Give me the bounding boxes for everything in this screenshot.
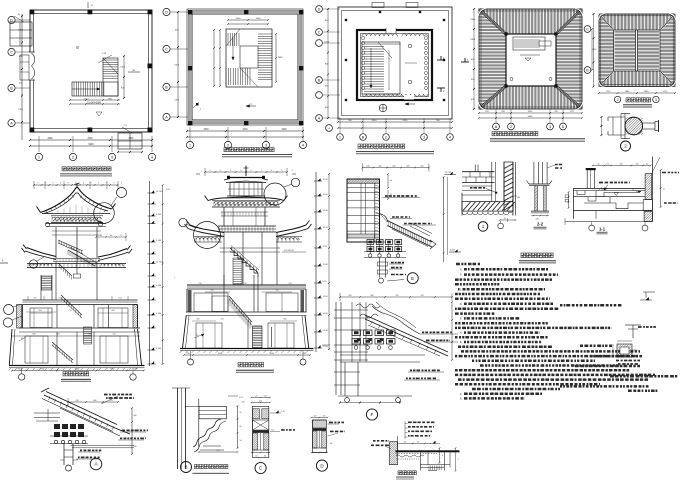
svg-text:3300: 3300 [242, 129, 248, 131]
svg-text:1500: 1500 [174, 65, 180, 67]
svg-text:360: 360 [378, 166, 381, 168]
svg-text:2: 2 [227, 143, 229, 147]
svg-text:1.2: 1.2 [120, 235, 123, 237]
svg-text:9: 9 [281, 170, 282, 172]
svg-text:4.: 4. [460, 331, 462, 335]
svg-text:420: 420 [620, 163, 623, 165]
svg-text:2: 2 [385, 135, 387, 139]
svg-text:3300: 3300 [128, 138, 134, 140]
svg-text:60: 60 [264, 456, 266, 458]
svg-text:750: 750 [220, 319, 223, 321]
svg-text:60: 60 [110, 235, 112, 237]
svg-text:120: 120 [314, 416, 317, 418]
svg-text:14.00: 14.00 [323, 313, 329, 315]
svg-text:50: 50 [239, 440, 241, 442]
svg-text:9: 9 [83, 183, 84, 185]
svg-text:3.400: 3.400 [156, 285, 162, 287]
svg-text:20: 20 [417, 442, 419, 444]
svg-text:780: 780 [186, 353, 189, 355]
svg-text:750: 750 [275, 290, 278, 292]
svg-text:12x240=2880: 12x240=2880 [87, 103, 102, 105]
svg-text:60: 60 [404, 442, 406, 444]
svg-text:14.40: 14.40 [323, 210, 329, 212]
svg-text:9.: 9. [460, 317, 462, 321]
svg-text:240: 240 [536, 219, 539, 221]
svg-text:D: D [562, 125, 565, 129]
svg-text:14.30: 14.30 [323, 264, 329, 266]
svg-text:1-1: 1-1 [599, 227, 606, 232]
svg-text:1800: 1800 [470, 39, 476, 41]
svg-text:1: 1 [339, 135, 341, 139]
svg-text:120: 120 [255, 396, 258, 398]
svg-text:1540: 1540 [75, 369, 79, 371]
svg-text:3: 3 [111, 155, 113, 159]
svg-text:17: 17 [663, 189, 665, 191]
svg-text:6.: 6. [460, 397, 462, 401]
svg-text:240: 240 [366, 166, 369, 168]
svg-text:240: 240 [241, 402, 244, 404]
svg-text:9: 9 [291, 170, 292, 172]
svg-text:3300: 3300 [47, 138, 53, 140]
svg-text:60: 60 [646, 163, 648, 165]
svg-text:2: 2 [72, 155, 74, 159]
svg-text:3300: 3300 [203, 129, 209, 131]
svg-text:9: 9 [271, 170, 272, 172]
svg-text:4200: 4200 [218, 353, 222, 355]
svg-text:60: 60 [598, 163, 600, 165]
svg-text:120: 120 [323, 416, 326, 418]
svg-text:9: 9 [261, 170, 262, 172]
svg-text:750: 750 [210, 290, 213, 292]
svg-text:9: 9 [37, 183, 38, 185]
svg-text:M5: M5 [330, 443, 333, 445]
svg-text:2: 2 [510, 125, 512, 129]
svg-text:1540: 1540 [256, 18, 262, 20]
svg-text:3: 3 [423, 135, 425, 139]
svg-text:1: 1 [38, 155, 40, 159]
svg-text:2-2: 2-2 [537, 221, 544, 226]
svg-text:8.: 8. [460, 340, 462, 344]
svg-text:1.20: 1.20 [281, 411, 285, 413]
svg-text:M5: M5 [517, 197, 520, 199]
svg-text:9: 9 [220, 170, 221, 172]
svg-text:2700: 2700 [18, 109, 24, 111]
svg-text:900: 900 [196, 319, 199, 321]
svg-text:1800: 1800 [470, 19, 476, 21]
svg-text:C: C [318, 30, 321, 34]
svg-text:4: 4 [449, 135, 451, 139]
svg-text:14.700: 14.700 [156, 191, 163, 193]
svg-text:8: 8 [442, 455, 443, 457]
svg-text:9: 9 [250, 170, 251, 172]
svg-text:6.100: 6.100 [156, 240, 162, 242]
svg-text:8.: 8. [460, 302, 462, 306]
svg-text:C: C [165, 47, 168, 51]
svg-text:9: 9 [60, 183, 61, 185]
svg-text:1750: 1750 [40, 369, 44, 371]
svg-text:5.: 5. [460, 273, 462, 277]
svg-text:3300: 3300 [87, 138, 93, 140]
svg-text:2: 2 [624, 144, 627, 149]
svg-text:780: 780 [134, 369, 137, 371]
svg-text:900: 900 [38, 310, 41, 312]
svg-text:6.500: 6.500 [156, 348, 162, 350]
svg-text:14.20: 14.20 [323, 227, 329, 229]
svg-text:60: 60 [390, 180, 392, 182]
svg-text:2700: 2700 [324, 42, 330, 44]
svg-text:750: 750 [216, 450, 219, 452]
svg-text:9: 9 [230, 170, 231, 172]
svg-text:3: 3 [265, 143, 267, 147]
svg-text:4200: 4200 [403, 120, 409, 122]
svg-text:90: 90 [239, 426, 241, 428]
svg-text:2740: 2740 [84, 98, 90, 100]
svg-text:2: 2 [458, 459, 459, 461]
svg-text:750: 750 [198, 283, 201, 285]
svg-text:9: 9 [98, 183, 99, 185]
svg-text:750: 750 [118, 298, 121, 300]
svg-text:3: 3 [655, 98, 657, 102]
svg-text:M: M [18, 14, 20, 16]
svg-text:+: + [328, 126, 330, 130]
svg-text:20: 20 [632, 190, 634, 192]
svg-text:14.10: 14.10 [323, 296, 329, 298]
svg-text:C: C [10, 50, 13, 54]
svg-text:60: 60 [256, 456, 258, 458]
svg-text:208: 208 [601, 189, 604, 191]
svg-text:24.970: 24.970 [445, 172, 451, 174]
svg-text:240: 240 [636, 163, 639, 165]
svg-text:3: 3 [549, 125, 551, 129]
svg-text:750: 750 [58, 298, 61, 300]
svg-text:2.: 2. [460, 392, 462, 396]
svg-text:12.80: 12.80 [323, 346, 329, 348]
svg-text:D: D [10, 18, 13, 22]
svg-text:750: 750 [243, 283, 246, 285]
svg-text:50: 50 [239, 412, 241, 414]
svg-text:1500: 1500 [120, 67, 126, 69]
svg-text:1540: 1540 [236, 18, 242, 20]
svg-text:780: 780 [17, 369, 20, 371]
svg-text:9: 9 [113, 183, 114, 185]
svg-text:E: E [411, 276, 414, 281]
svg-text:60: 60 [100, 235, 102, 237]
svg-text:9900: 9900 [88, 144, 94, 146]
svg-text:C20: C20 [271, 430, 274, 432]
svg-text:120: 120 [264, 396, 267, 398]
svg-text:D: D [318, 7, 321, 11]
svg-text:3.900: 3.900 [156, 313, 162, 315]
svg-text:2700: 2700 [174, 100, 180, 102]
svg-text:750: 750 [68, 310, 71, 312]
svg-text:F: F [371, 412, 374, 418]
svg-text:20: 20 [504, 218, 506, 220]
svg-text:120: 120 [606, 163, 609, 165]
svg-text:750: 750 [112, 334, 115, 336]
svg-text:900: 900 [32, 334, 35, 336]
svg-text:4200: 4200 [270, 353, 274, 355]
svg-text:14.10: 14.10 [323, 194, 329, 196]
svg-text:4.600: 4.600 [450, 249, 455, 251]
svg-text:3300: 3300 [281, 129, 287, 131]
svg-text:9: 9 [240, 170, 241, 172]
svg-text:C: C [586, 27, 589, 31]
svg-text:D: D [165, 10, 168, 14]
svg-text:2: 2 [617, 98, 619, 102]
svg-text:2880: 2880 [278, 57, 284, 59]
svg-text:750: 750 [288, 283, 291, 285]
svg-text:3.200: 3.200 [156, 214, 162, 216]
svg-text:1: 1 [189, 143, 191, 147]
svg-text:9: 9 [121, 183, 122, 185]
svg-text:600: 600 [406, 166, 409, 168]
svg-text:600: 600 [420, 166, 423, 168]
svg-text:900: 900 [111, 310, 114, 312]
svg-text:14.30: 14.30 [323, 330, 329, 332]
svg-text:9: 9 [68, 183, 69, 185]
svg-text:14.700: 14.700 [156, 262, 163, 264]
svg-text:B: B [184, 465, 187, 470]
svg-text:600: 600 [392, 166, 395, 168]
svg-text:900: 900 [283, 319, 286, 321]
svg-text:12.20: 12.20 [323, 179, 329, 181]
svg-text:2400: 2400 [372, 120, 378, 122]
svg-text:1.: 1. [460, 287, 462, 291]
svg-text:4.: 4. [460, 267, 462, 271]
svg-text:JD2 M5.08: JD2 M5.08 [284, 250, 295, 252]
svg-text:750: 750 [33, 298, 36, 300]
svg-text:240: 240 [259, 401, 262, 403]
svg-text:4: 4 [302, 143, 304, 147]
svg-text:9: 9 [90, 183, 91, 185]
svg-text:9: 9 [52, 183, 53, 185]
svg-text:1750: 1750 [110, 369, 114, 371]
svg-text:9: 9 [106, 183, 107, 185]
svg-text:4: 4 [151, 155, 153, 159]
svg-text:9: 9 [209, 170, 210, 172]
